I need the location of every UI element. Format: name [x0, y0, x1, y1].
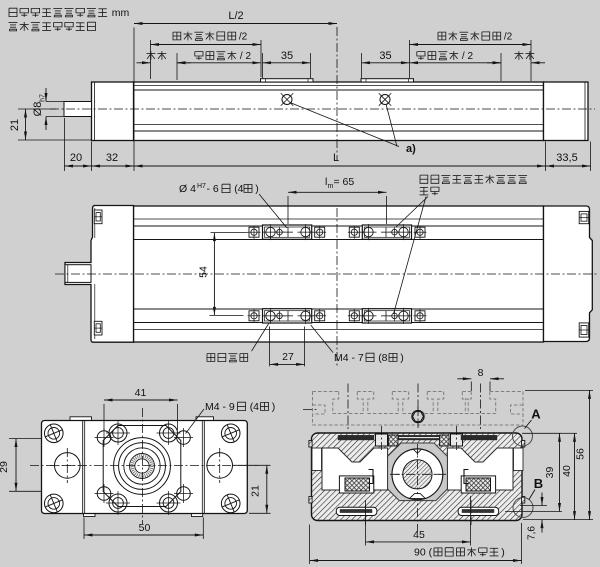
svg-text:50: 50 — [139, 522, 151, 534]
svg-text:(4: (4 — [250, 401, 259, 413]
svg-text:/ 2: / 2 — [462, 51, 474, 62]
svg-text:45: 45 — [413, 529, 425, 541]
svg-text:a): a) — [406, 143, 416, 155]
svg-text:- 6: - 6 — [207, 183, 219, 195]
svg-text:M4 - 9: M4 - 9 — [205, 401, 235, 413]
svg-text:= 65: = 65 — [334, 176, 355, 188]
svg-text:21: 21 — [9, 119, 21, 131]
svg-text:): ) — [501, 547, 505, 559]
svg-text:27: 27 — [282, 351, 294, 363]
svg-text:29: 29 — [0, 461, 10, 473]
svg-text:20: 20 — [70, 152, 82, 164]
svg-text:7,6: 7,6 — [527, 526, 538, 540]
svg-text:(4: (4 — [234, 183, 243, 195]
svg-text:90 (: 90 ( — [414, 547, 433, 559]
svg-text:54: 54 — [198, 266, 210, 278]
svg-text:32: 32 — [106, 152, 118, 164]
svg-text:8: 8 — [478, 367, 484, 379]
svg-text:L/2: L/2 — [228, 10, 243, 22]
svg-text:h7: h7 — [40, 94, 47, 102]
svg-text:Ø 4: Ø 4 — [179, 183, 196, 195]
svg-text:H7: H7 — [197, 183, 206, 190]
svg-text:/ 2: / 2 — [240, 51, 252, 62]
svg-text:B: B — [534, 476, 543, 491]
svg-text:mm: mm — [112, 7, 130, 19]
svg-text:33,5: 33,5 — [556, 152, 577, 164]
svg-text:): ) — [400, 352, 404, 364]
svg-text:A: A — [531, 407, 541, 422]
svg-text:41: 41 — [135, 387, 147, 399]
svg-text:/2: /2 — [239, 32, 248, 43]
svg-text:(8: (8 — [378, 352, 387, 364]
svg-text:40: 40 — [561, 465, 573, 477]
svg-text:35: 35 — [281, 50, 293, 62]
svg-text:/2: /2 — [504, 32, 513, 43]
svg-text:56: 56 — [575, 448, 587, 460]
svg-text:35: 35 — [379, 50, 391, 62]
svg-text:): ) — [255, 183, 259, 195]
svg-text:21: 21 — [250, 485, 262, 497]
svg-text:M4 - 7: M4 - 7 — [334, 352, 364, 364]
svg-text:L: L — [333, 152, 339, 164]
svg-text:39: 39 — [544, 467, 556, 479]
svg-text:): ) — [272, 401, 276, 413]
